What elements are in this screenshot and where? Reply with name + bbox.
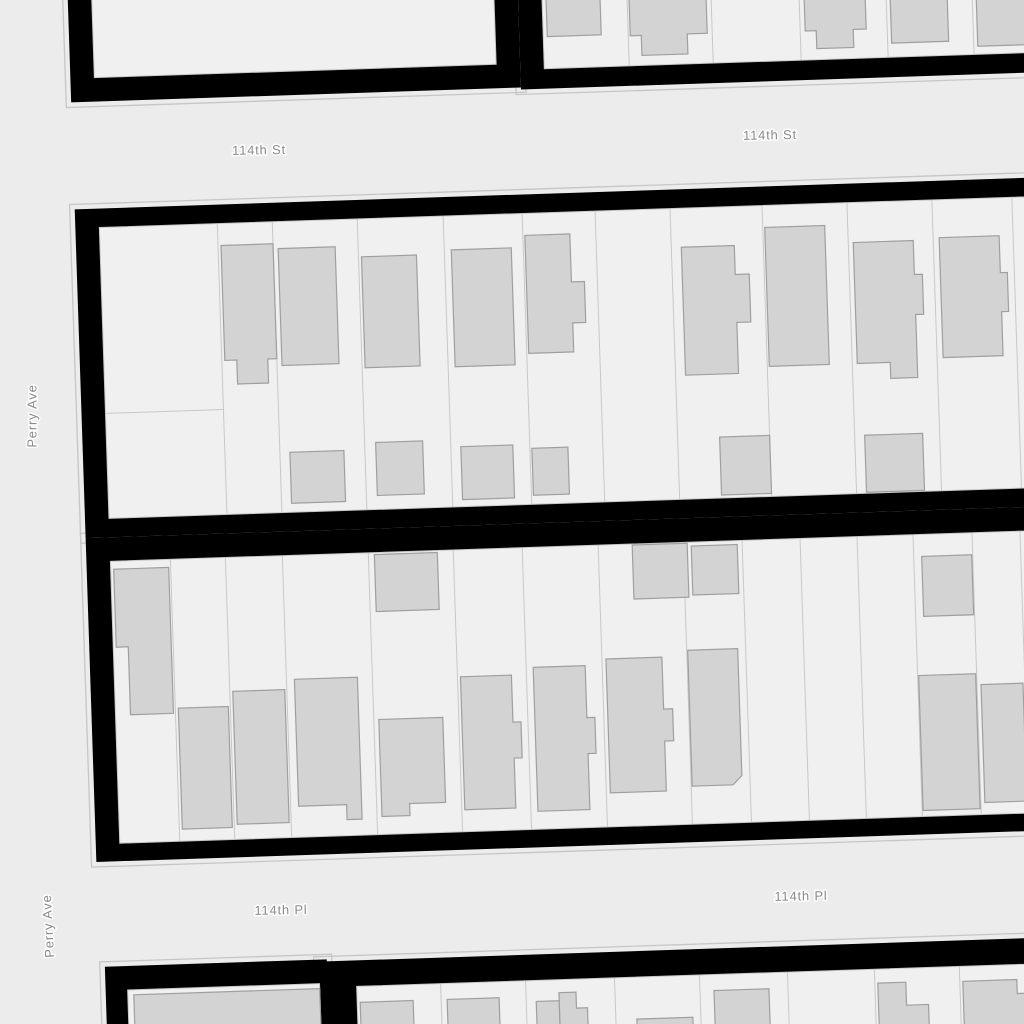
street-label: Perry Ave: [24, 384, 39, 447]
block-114th-st-south: [99, 193, 1024, 518]
building-footprint: [691, 545, 739, 595]
parcel-area: [90, 0, 496, 78]
building-footprint: [919, 674, 980, 811]
building-footprint: [765, 225, 830, 366]
building-footprint: [233, 690, 289, 825]
building-footprint: [974, 0, 1024, 46]
building-footprint: [922, 555, 974, 617]
block-bottom-left: [128, 984, 325, 1024]
building-footprint: [981, 683, 1024, 802]
street-label: 114th St: [743, 127, 797, 143]
building-footprint: [447, 998, 503, 1024]
building-footprint: [632, 543, 689, 599]
map-viewport[interactable]: 114th St114th St114th Pl114th PlPerry Av…: [0, 0, 1024, 1024]
building-footprint: [451, 248, 515, 367]
building-footprint: [178, 707, 232, 830]
building-footprint: [888, 0, 949, 43]
building-footprint: [544, 0, 601, 37]
building-footprint: [134, 989, 325, 1024]
street-label: 114th Pl: [254, 902, 307, 918]
building-footprint: [532, 447, 570, 495]
map-canvas: 114th St114th St114th Pl114th PlPerry Av…: [0, 0, 1024, 1024]
building-footprint: [714, 989, 773, 1024]
street-label: 114th St: [232, 142, 286, 158]
building-footprint: [688, 649, 742, 787]
building-footprint: [720, 435, 772, 495]
building-footprint: [278, 247, 339, 366]
street-label: 114th Pl: [774, 888, 827, 904]
building-footprint: [290, 451, 346, 504]
building-footprint: [376, 441, 425, 496]
block-top-left: [90, 0, 496, 78]
building-footprint: [361, 255, 420, 368]
building-footprint: [294, 677, 362, 821]
building-footprint: [865, 433, 925, 492]
block-114th-pl-north: [110, 527, 1024, 843]
building-footprint: [360, 1001, 417, 1024]
building-footprint: [939, 235, 1010, 357]
building-footprint: [963, 979, 1024, 1024]
building-footprint: [461, 445, 515, 500]
building-footprint: [374, 552, 439, 611]
building-footprint: [637, 1017, 697, 1024]
building-footprint: [379, 717, 446, 816]
